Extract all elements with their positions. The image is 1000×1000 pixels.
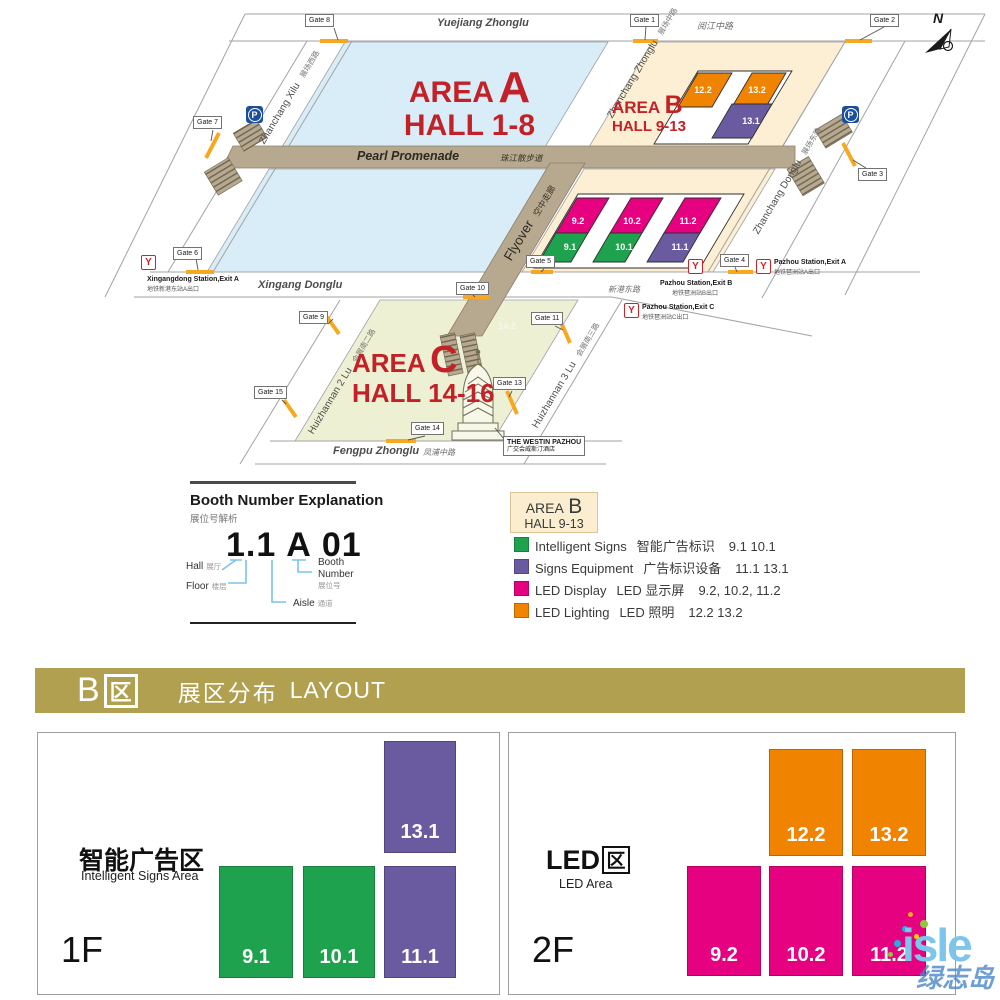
- gate-8: Gate 8: [305, 14, 334, 27]
- gate-10: Gate 10: [456, 282, 489, 295]
- station-pazhou-a-en: Pazhou Station,Exit A: [774, 259, 846, 266]
- road-fengpu-en: Fengpu Zhonglu: [333, 445, 419, 457]
- legend-item-signs-equipment: Signs Equipment广告标识设备11.1 13.1: [535, 558, 789, 577]
- map-hall-faint: 14.2: [490, 321, 524, 331]
- banner-district-box: 区: [104, 674, 138, 708]
- gate-1: Gate 1: [630, 14, 659, 27]
- road-xingang-en: Xingang Donglu: [258, 279, 342, 291]
- metro-icon: Y: [624, 303, 639, 318]
- watermark-dot: [908, 912, 913, 917]
- isle-watermark-logo: isle 绿志岛: [880, 900, 1000, 1000]
- metro-icon: Y: [141, 255, 156, 270]
- watermark-dot: [894, 940, 901, 947]
- booth-callout-aisle: Aisle通道: [293, 598, 333, 610]
- road-yuejiang-en: Yuejiang Zhonglu: [437, 17, 529, 29]
- booth-callout-floor: Floor楼层: [186, 581, 227, 593]
- parking-icon: P: [842, 106, 859, 123]
- panel-1f-floor: 1F: [61, 929, 103, 971]
- gate-7: Gate 7: [193, 116, 222, 129]
- station-xingangdong-zh: 地铁新港东站A出口: [147, 284, 199, 293]
- map-hall-9-1: 9.1: [554, 242, 586, 252]
- section-banner: B 区 展区分布 LAYOUT: [35, 668, 965, 713]
- watermark-dot: [888, 952, 893, 957]
- panel-2f-title: LED区: [546, 845, 630, 876]
- gate-14: Gate 14: [411, 422, 444, 435]
- parking-icon: P: [246, 106, 263, 123]
- map-hall-10-2: 10.2: [616, 216, 648, 226]
- isle-venue-floorplan: N Yuejiang Zhonglu 阅江中路 Xingang Donglu 新…: [0, 0, 1000, 1000]
- booth-rule-top: [190, 481, 356, 484]
- gate-2: Gate 2: [870, 14, 899, 27]
- metro-icon: Y: [688, 259, 703, 274]
- gate-9: Gate 9: [299, 311, 328, 324]
- north-label: N: [933, 10, 943, 26]
- panel-1f-subtitle: Intelligent Signs Area: [81, 869, 198, 883]
- map-hall-11-1: 11.1: [662, 242, 698, 252]
- booth-explanation-title: Booth Number Explanation: [190, 492, 383, 509]
- hall-box-10-1: 10.1: [303, 866, 375, 978]
- pearl-promenade-zh: 珠江散步道: [500, 152, 543, 164]
- legend-swatch-magenta: [514, 581, 529, 596]
- legend-swatch-orange: [514, 603, 529, 618]
- hall-box-9-1: 9.1: [219, 866, 293, 978]
- map-hall-13-2: 13.2: [740, 85, 774, 95]
- metro-icon: Y: [756, 259, 771, 274]
- legend-swatch-purple: [514, 559, 529, 574]
- banner-letter: B: [77, 671, 100, 710]
- map-hall-13-1: 13.1: [734, 116, 768, 126]
- hall-box-11-1: 11.1: [384, 866, 456, 978]
- legend-swatch-green: [514, 537, 529, 552]
- road-xingang-zh: 新港东路: [608, 284, 640, 295]
- gate-4: Gate 4: [720, 254, 749, 267]
- station-pazhou-c-zh: 地铁琶洲站C出口: [642, 312, 688, 321]
- booth-callout-hall: Hall展厅: [186, 561, 221, 573]
- hall-box-9-2: 9.2: [687, 866, 761, 976]
- legend-item-led-display: LED DisplayLED 显示屏9.2, 10.2, 11.2: [535, 580, 781, 599]
- gate-6: Gate 6: [173, 247, 202, 260]
- hall-box-13-2: 13.2: [852, 749, 926, 856]
- road-fengpu-zh: 凤浦中路: [423, 447, 455, 458]
- map-hall-12-2: 12.2: [686, 85, 720, 95]
- banner-title-zh: 展区分布: [178, 674, 278, 708]
- station-pazhou-a-zh: 地铁琶洲站A出口: [774, 267, 820, 276]
- gate-5: Gate 5: [526, 255, 555, 268]
- hall-box-13-1: 13.1: [384, 741, 456, 853]
- westin-hotel-label: THE WESTIN PAZHOU 广交会威斯汀酒店: [503, 436, 585, 456]
- gate-3: Gate 3: [858, 168, 887, 181]
- legend-item-intelligent-signs: Intelligent Signs智能广告标识9.1 10.1: [535, 536, 776, 555]
- booth-callout-booth-number: Booth Number 展位号: [318, 557, 354, 590]
- area-b-title: AREA B HALL 9-13: [612, 93, 686, 134]
- map-hall-10-1: 10.1: [608, 242, 640, 252]
- station-xingangdong-en: Xingangdong Station,Exit A: [147, 276, 239, 283]
- panel-1f: 智能广告区 Intelligent Signs Area 1F 13.1 9.1…: [37, 732, 500, 995]
- banner-title-en: LAYOUT: [290, 677, 386, 704]
- pearl-promenade-en: Pearl Promenade: [357, 149, 459, 163]
- station-pazhou-b-zh: 地铁琶洲站B出口: [672, 288, 718, 297]
- legend-area-b-box: AREA B HALL 9-13: [510, 492, 598, 533]
- panel-2f-floor: 2F: [532, 929, 574, 971]
- legend-item-led-lighting: LED LightingLED 照明12.2 13.2: [535, 602, 743, 621]
- gate-15: Gate 15: [254, 386, 287, 399]
- station-pazhou-c-en: Pazhou Station,Exit C: [642, 304, 714, 311]
- road-yuejiang-zh: 阅江中路: [697, 19, 733, 32]
- booth-rule-bottom: [190, 622, 356, 624]
- area-a-title: AREA A HALL 1-8: [362, 66, 577, 141]
- gate-11: Gate 11: [531, 312, 563, 325]
- hall-box-12-2: 12.2: [769, 749, 843, 856]
- station-pazhou-b-en: Pazhou Station,Exit B: [660, 280, 732, 287]
- map-hall-11-2: 11.2: [670, 216, 706, 226]
- gate-13: Gate 13: [493, 377, 526, 390]
- booth-explanation-title-zh: 展位号解析: [190, 511, 238, 525]
- hall-box-10-2: 10.2: [769, 866, 843, 976]
- watermark-zh-text: 绿志岛: [916, 958, 994, 995]
- panel-2f-subtitle: LED Area: [559, 877, 613, 891]
- area-c-title: AREA C HALL 14-16: [352, 341, 495, 406]
- map-hall-9-2: 9.2: [562, 216, 594, 226]
